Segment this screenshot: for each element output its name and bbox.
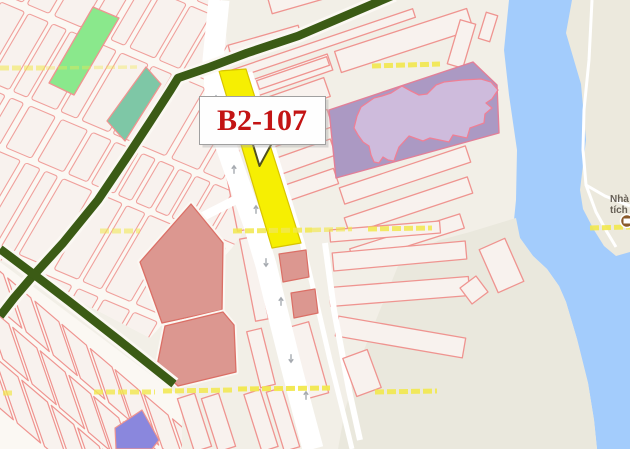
svg-text:B2-107: B2-107 (217, 104, 307, 137)
svg-text:Nhà: Nhà (610, 194, 629, 205)
